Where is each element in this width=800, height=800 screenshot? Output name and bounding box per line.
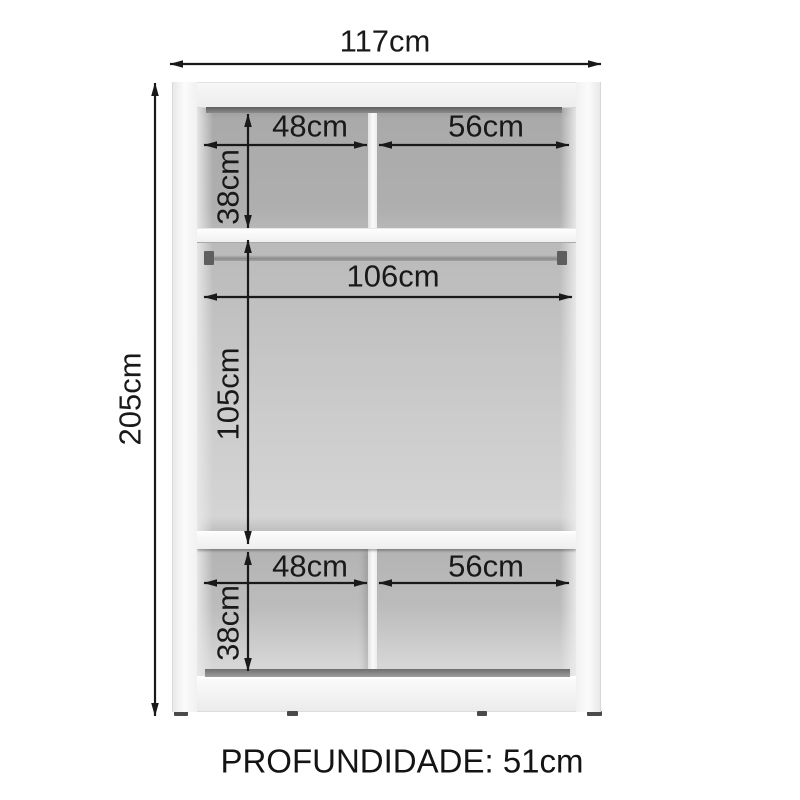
dim-label-middle-width: 106cm	[346, 261, 439, 292]
cabinet-top-panel	[172, 82, 601, 108]
base-dark-strip	[205, 669, 570, 677]
depth-label: PROFUNDIDADE: 51cm	[220, 745, 583, 778]
cabinet-left-panel	[172, 82, 197, 712]
dim-label-bottom-right-width: 56cm	[448, 551, 524, 582]
base-front-panel	[196, 677, 577, 712]
dim-label-bottom-left-width: 48cm	[272, 551, 348, 582]
cabinet-interior	[197, 108, 576, 676]
dim-label-bottom-height: 38cm	[213, 585, 244, 661]
dim-label-overall-height: 205cm	[115, 352, 146, 445]
lower-shelf	[197, 531, 576, 549]
rod-bracket-left	[204, 251, 214, 265]
wardrobe-dimension-diagram: 117cm 205cm 48cm 56cm 38cm 106cm 105cm 4…	[0, 0, 800, 800]
cabinet-foot	[287, 711, 298, 716]
lower-center-divider	[368, 549, 377, 671]
dim-label-top-left-width: 48cm	[272, 111, 348, 142]
dim-label-middle-height: 105cm	[213, 347, 244, 440]
cabinet-right-panel	[576, 82, 601, 712]
dim-label-top-right-width: 56cm	[448, 111, 524, 142]
rod-bracket-right	[557, 251, 567, 265]
upper-shelf	[197, 228, 576, 242]
dim-label-top-height: 38cm	[213, 149, 244, 225]
upper-center-divider	[368, 113, 377, 228]
dim-label-overall-width: 117cm	[340, 26, 431, 57]
cabinet-foot	[477, 711, 487, 716]
